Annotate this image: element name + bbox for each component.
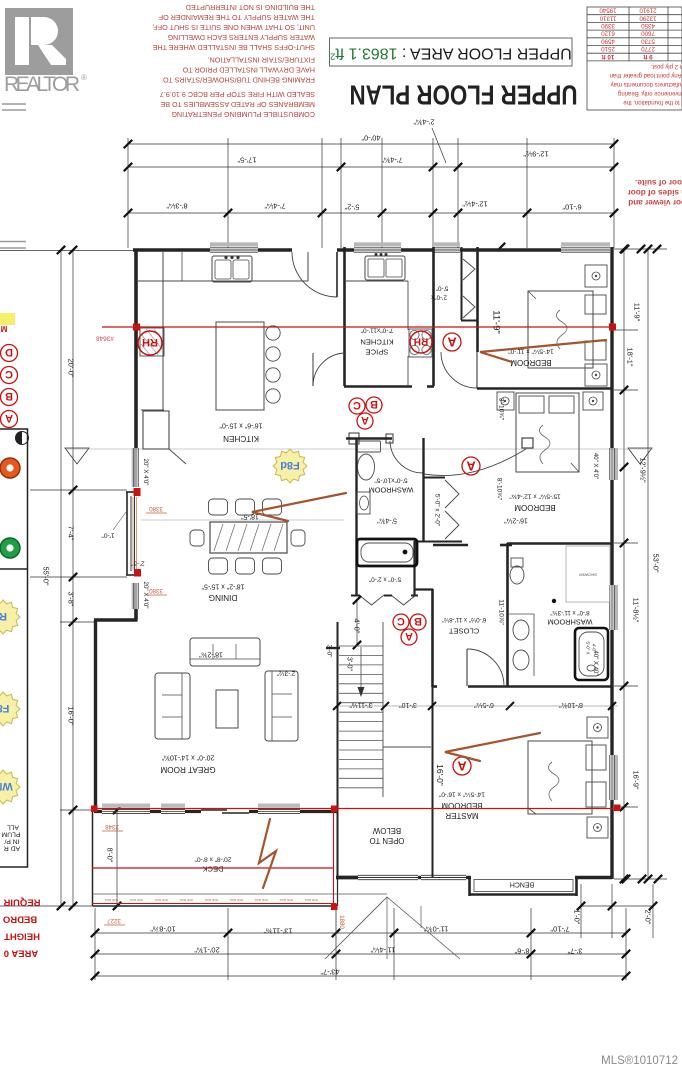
svg-text:W/D RAIL: W/D RAIL [279, 898, 293, 902]
svg-text:5'-0" X: 5'-0" X [585, 642, 590, 655]
svg-text:HAVE DRYWALL INSTALLED PRIOR T: HAVE DRYWALL INSTALLED PRIOR TO [182, 66, 315, 75]
svg-text:12'-9½": 12'-9½" [638, 457, 647, 483]
svg-text:16'-9": 16'-9" [631, 770, 640, 789]
svg-text:SHOWER: SHOWER [579, 573, 597, 578]
svg-text:7'-4": 7'-4" [66, 526, 75, 541]
svg-text:3'-10": 3'-10" [399, 701, 417, 708]
svg-text:W/D RAIL: W/D RAIL [254, 898, 268, 902]
svg-text:BELOW: BELOW [372, 826, 401, 835]
svg-text:20" X 4'0": 20" X 4'0" [142, 459, 149, 486]
svg-text:BEDROOM: BEDROOM [510, 358, 552, 367]
svg-text:3380: 3380 [149, 505, 163, 512]
svg-text:20'-0" x 14'-10¾": 20'-0" x 14'-10¾" [161, 753, 214, 760]
svg-text:8'-10¾": 8'-10¾" [496, 478, 503, 501]
svg-text:8'-0" x 11'-3¾": 8'-0" x 11'-3¾" [550, 609, 589, 616]
svg-text:16'-0": 16'-0" [435, 764, 445, 786]
svg-text:C: C [353, 399, 361, 411]
svg-text:IN P/: IN P/ [4, 838, 19, 845]
svg-text:21910: 21910 [639, 7, 657, 14]
svg-text:5'-0"x10'-5": 5'-0"x10'-5" [374, 477, 408, 484]
svg-text:20'-8" x 8'-0": 20'-8" x 8'-0" [194, 856, 232, 863]
svg-text:C: C [397, 615, 405, 627]
svg-text:55'-0": 55'-0" [41, 566, 50, 585]
svg-text:W/D RAIL: W/D RAIL [304, 898, 318, 902]
svg-text:1'-0": 1'-0" [572, 910, 581, 925]
svg-text:RH: RH [142, 336, 158, 348]
svg-text:2'-0"x: 2'-0"x [430, 294, 447, 301]
svg-text:THE BUILDING IS NOT INTERRUPTE: THE BUILDING IS NOT INTERRUPTED [186, 3, 315, 12]
svg-text:DINING: DINING [209, 593, 238, 602]
svg-text:D: D [5, 346, 13, 358]
svg-text:12'-9½": 12'-9½" [523, 149, 549, 158]
svg-text:WATER SUPPLY ENTERS EACH DWELL: WATER SUPPLY ENTERS EACH DWELLING [167, 33, 315, 42]
svg-text:6'-5¼": 6'-5¼" [474, 701, 494, 708]
svg-text:5'-0" x 2'-0": 5'-0" x 2'-0" [369, 576, 401, 583]
svg-text:R: R [0, 610, 7, 622]
svg-text:5'-0": 5'-0" [436, 285, 449, 292]
svg-text:3390: 3390 [601, 22, 615, 29]
svg-text:MLS®1010712: MLS®1010712 [601, 1055, 678, 1067]
svg-text:3'-10¾": 3'-10¾" [498, 398, 505, 421]
svg-text:2'-3½": 2'-3½" [276, 670, 295, 678]
svg-text:gh to the foundation, the: gh to the foundation, the [623, 99, 682, 105]
svg-text:43'-7": 43'-7" [320, 967, 339, 976]
svg-text:B: B [5, 390, 13, 402]
svg-text:W/D RAIL: W/D RAIL [229, 898, 243, 902]
svg-text:W/D RAIL: W/D RAIL [129, 898, 143, 902]
svg-text:9 ft: 9 ft [643, 53, 652, 60]
svg-text:MEMBRANES OF RATED ASSEMBLIES: MEMBRANES OF RATED ASSEMBLIES TO BE [160, 100, 315, 109]
svg-text:18'-1": 18'-1" [625, 347, 634, 366]
svg-text:PLUM: PLUM [1, 831, 20, 838]
svg-text:3227: 3227 [107, 917, 121, 924]
svg-text:anufacturers documents may: anufacturers documents may [611, 81, 682, 87]
svg-text:18'-2" x 15'-5": 18'-2" x 15'-5" [201, 582, 245, 589]
svg-text:3'-0": 3'-0" [346, 657, 353, 671]
svg-text:20'-0": 20'-0" [66, 358, 75, 377]
svg-text:4350: 4350 [641, 22, 655, 29]
svg-text:2510: 2510 [601, 45, 615, 52]
svg-text:W/D RAIL: W/D RAIL [204, 898, 218, 902]
svg-text:A: A [447, 335, 456, 349]
svg-text:16'-2¼": 16'-2¼" [504, 516, 528, 523]
svg-text:16'-6" x 15'-0": 16'-6" x 15'-0" [219, 421, 263, 428]
svg-text:KITCHEN: KITCHEN [223, 434, 259, 443]
svg-text:AD R: AD R [4, 845, 20, 852]
svg-text:HEIGHT: HEIGHT [4, 931, 40, 942]
svg-text:M: M [0, 324, 7, 333]
svg-text:THE WATER SUPPLY TO THE REMAIN: THE WATER SUPPLY TO THE REMAINDER OF [158, 13, 315, 22]
svg-text:1'-0": 1'-0" [101, 532, 115, 539]
svg-text:3'-7": 3'-7" [567, 946, 582, 955]
svg-text:A: A [405, 630, 413, 642]
svg-text:B: B [370, 398, 378, 410]
svg-text:4590: 4590 [601, 37, 615, 44]
svg-text:40" X 40": 40" X 40" [592, 651, 598, 676]
svg-text:WASHROOM: WASHROOM [369, 485, 414, 494]
svg-text:W/D RAIL: W/D RAIL [154, 898, 168, 902]
svg-text:14'-5¼" x 16'-0": 14'-5¼" x 16'-0" [438, 791, 485, 798]
svg-text:2'-4¾": 2'-4¾" [413, 117, 435, 126]
svg-text:FIXTURE/STAIR INSTALLATION.: FIXTURE/STAIR INSTALLATION. [208, 56, 315, 65]
svg-text:KITCHEN: KITCHEN [360, 337, 393, 346]
svg-text:A: A [457, 759, 466, 773]
svg-text:2'-0": 2'-0" [643, 910, 652, 925]
svg-text:3'-8": 3'-8" [66, 592, 75, 607]
svg-text:13290: 13290 [639, 14, 657, 21]
svg-text:6'-0½" x 11'-8½": 6'-0½" x 11'-8½" [442, 616, 486, 623]
svg-text:d. Any point load greater tha: d. Any point load greater than [610, 72, 682, 78]
svg-text:5'-0" x 2'-0": 5'-0" x 2'-0" [434, 494, 441, 526]
svg-text:40'-0": 40'-0" [361, 133, 380, 142]
svg-text:convenience only. Bearing: convenience only. Bearing [618, 90, 682, 96]
svg-text:1880: 1880 [338, 915, 345, 929]
svg-text:C: C [5, 368, 13, 380]
svg-text:GREAT ROOM: GREAT ROOM [160, 765, 215, 774]
svg-text:SHUT-OFFS SHALL BE INSTALLED W: SHUT-OFFS SHALL BE INSTALLED WHERE THE [152, 43, 315, 52]
svg-text:7'-0"x11'-0": 7'-0"x11'-0" [360, 327, 393, 334]
svg-text:10'-8⅞": 10'-8⅞" [150, 924, 176, 933]
svg-text:8'-3¼": 8'-3¼" [166, 201, 188, 210]
svg-text:20'-1¾": 20'-1¾" [194, 945, 220, 954]
svg-text:FRAMING BEHIND TUB/SHOWER/STAI: FRAMING BEHIND TUB/SHOWER/STAIRS TO [163, 76, 315, 85]
svg-text:11310: 11310 [599, 14, 616, 21]
svg-text:F8d: F8d [280, 459, 300, 471]
svg-text:5'-2": 5'-2" [344, 202, 359, 211]
svg-text:3380: 3380 [149, 587, 163, 594]
svg-text:7'-10": 7'-10" [550, 924, 569, 933]
svg-text:A: A [5, 412, 13, 424]
svg-text:5'-4¾": 5'-4¾" [377, 516, 397, 523]
svg-text:3'-0": 3'-0" [326, 645, 333, 659]
svg-text:7'-4¼": 7'-4¼" [264, 201, 286, 210]
svg-text:WM: WM [0, 780, 13, 792]
svg-text:REQUIR: REQUIR [3, 897, 40, 908]
svg-text:A: A [466, 459, 475, 473]
svg-text:W/D RAIL: W/D RAIL [179, 898, 193, 902]
svg-text:UPPER FLOOR PLAN: UPPER FLOOR PLAN [350, 80, 578, 111]
svg-text:8'-6": 8'-6" [514, 946, 529, 955]
svg-text:8'-10¾": 8'-10¾" [559, 701, 583, 708]
svg-text:8'-0": 8'-0" [105, 848, 114, 863]
svg-text:10 ft: 10 ft [602, 53, 615, 60]
svg-text:OPEN TO: OPEN TO [370, 836, 405, 845]
svg-text:SPICE: SPICE [366, 347, 389, 356]
svg-text:COMBUSTIBLE PLUMBING PENETRATI: COMBUSTIBLE PLUMBING PENETRATING [171, 110, 315, 119]
svg-text:17'-5": 17'-5" [237, 155, 256, 164]
svg-text:BEDRO: BEDRO [3, 914, 37, 925]
svg-text:11'-9": 11'-9" [491, 310, 502, 334]
svg-text:BENCH: BENCH [510, 881, 535, 888]
svg-text:CLOSET: CLOSET [448, 626, 479, 635]
svg-text:11'-8½": 11'-8½" [631, 598, 640, 623]
svg-text:13'-11⅜": 13'-11⅜" [263, 926, 292, 935]
svg-text:SEALED WITH FIRE STOP PER BCBC: SEALED WITH FIRE STOP PER BCBC 9.10.9.7 [160, 90, 315, 99]
svg-text:BEDROOM: BEDROOM [514, 503, 556, 512]
svg-text:7600: 7600 [641, 30, 655, 37]
svg-text:2770: 2770 [641, 45, 655, 52]
svg-text:6120: 6120 [601, 30, 615, 37]
svg-text:oor of suite.: oor of suite. [635, 178, 682, 187]
svg-text:11'-4¼": 11'-4¼" [370, 945, 395, 954]
svg-text:th sides of door: th sides of door [627, 188, 682, 197]
svg-text:18'-2⅜": 18'-2⅜" [199, 650, 223, 657]
svg-text:oor viewer and: oor viewer and [628, 198, 682, 207]
svg-text:W/D RAIL: W/D RAIL [104, 898, 118, 902]
svg-text:7'-4¾": 7'-4¾" [381, 155, 403, 164]
svg-text:11'-10⅞": 11'-10⅞" [498, 599, 505, 625]
svg-text:16'-0": 16'-0" [66, 706, 75, 725]
svg-text:UNIT, SO THAT WHEN ONE SUITE I: UNIT, SO THAT WHEN ONE SUITE IS SHUT OFF… [152, 23, 315, 32]
svg-text:#3648: #3648 [96, 335, 114, 342]
svg-text:15'-5¼" x 12'-4¾": 15'-5¼" x 12'-4¾" [509, 493, 561, 500]
svg-text:um 2 ply post.: um 2 ply post. [650, 63, 682, 69]
svg-text:6'-10": 6'-10" [562, 202, 581, 211]
svg-text:11'-0¾": 11'-0¾" [423, 924, 448, 933]
svg-text:AREA 0: AREA 0 [4, 948, 39, 959]
svg-text:F8: F8 [0, 702, 9, 714]
svg-text:A: A [361, 414, 369, 426]
svg-text:53'-0": 53'-0" [651, 553, 660, 572]
svg-text:40" X 4'0": 40" X 4'0" [592, 453, 598, 479]
svg-text:UPPER FLOOR AREA : 1863.1 ft2: UPPER FLOOR AREA : 1863.1 ft2 [330, 45, 572, 62]
svg-text:RH: RH [414, 335, 428, 346]
svg-text:MASTER: MASTER [445, 811, 479, 820]
svg-text:3'-11⅛": 3'-11⅛" [349, 701, 373, 708]
svg-text:REALTOR: REALTOR [4, 73, 80, 96]
svg-text:ALL: ALL [7, 824, 19, 831]
svg-text:DECK: DECK [202, 864, 223, 873]
svg-text:12'-4½": 12'-4½" [462, 199, 488, 208]
svg-text:®: ® [81, 73, 87, 82]
svg-text:19540: 19540 [599, 7, 617, 14]
svg-text:WASHROOM: WASHROOM [548, 617, 593, 626]
svg-text:11'-9": 11'-9" [632, 303, 641, 322]
svg-text:5730: 5730 [641, 37, 655, 44]
svg-text:2348: 2348 [105, 823, 119, 830]
svg-text:B: B [414, 615, 422, 627]
